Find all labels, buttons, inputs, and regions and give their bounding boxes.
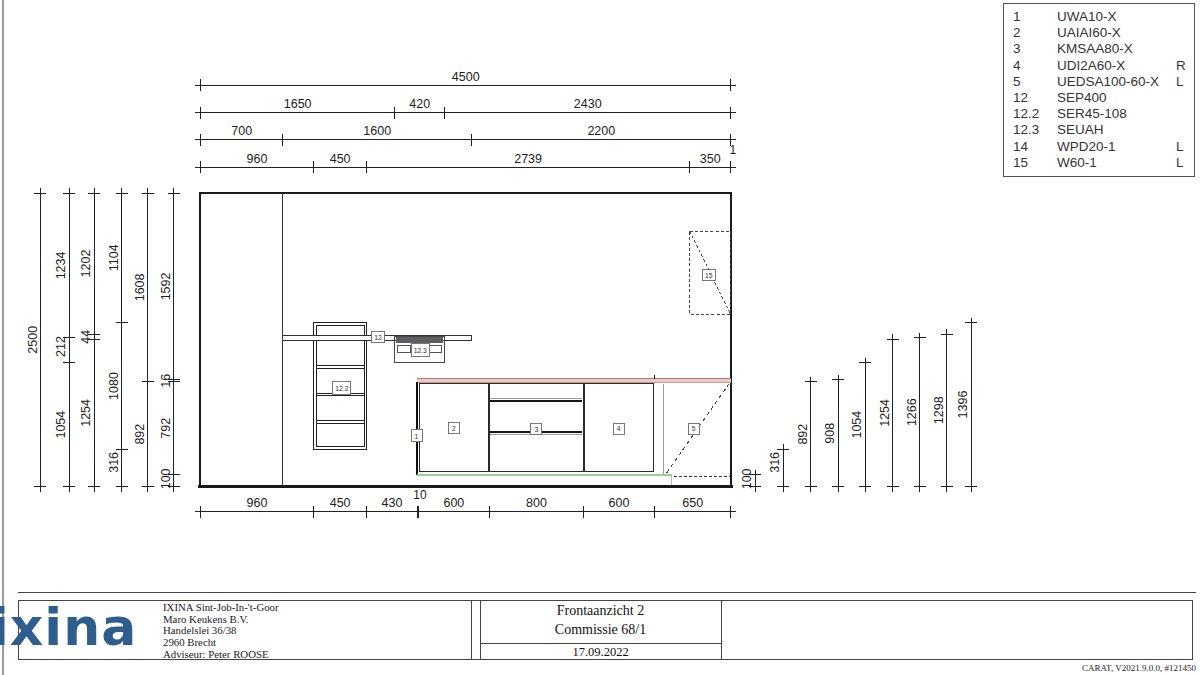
dimension-label: 1266 (905, 398, 919, 426)
plinth (417, 475, 730, 485)
dimension-label: 1254 (80, 399, 94, 427)
dimension-label: 1396 (957, 391, 971, 419)
dimension-label: 1600 (363, 124, 391, 138)
dimension-label: 1608 (133, 273, 147, 301)
parts-list-row: 4UDI2A60-XR (1004, 58, 1194, 74)
parts-list-cell: 3 (1004, 41, 1057, 57)
parts-list-cell: 5 (1004, 74, 1057, 90)
dimension-label: 450 (330, 152, 351, 166)
dim-chain-left-6: 100792161592 (159, 188, 180, 492)
parts-list: 1UWA10-X2UAIAI60-X3KMSAA80-X4UDI2A60-XR5… (1003, 3, 1195, 177)
dimension-label: 1 (415, 433, 419, 440)
parts-list-cell (1176, 122, 1194, 138)
dimension-label: 350 (700, 152, 721, 166)
dim-right-892: 892 (796, 377, 817, 492)
dimension-label: 450 (330, 496, 351, 510)
dimension-label: 212 (55, 336, 69, 357)
parts-list-row: 2UAIAI60-X (1004, 25, 1194, 41)
parts-list-cell (1176, 25, 1194, 41)
parts-list-cell: SEUAH (1057, 122, 1176, 138)
dimension-label: 4 (617, 425, 621, 432)
dimension-label: 100 (741, 468, 755, 489)
parts-list-cell: KMSAA80-X (1057, 41, 1176, 57)
dim-chain-left-2: 10542121234 (55, 188, 76, 492)
commission-number: Commissie 68/1 (480, 622, 721, 638)
dimension-label: 2739 (514, 152, 542, 166)
dimension-label: 2 (452, 425, 456, 432)
dealer-address: IXINA Sint-Job-In-'t-Goor Maro Keukens B… (163, 602, 279, 661)
dimension-label: 1592 (159, 273, 173, 301)
dim-right-1254: 1254 (878, 334, 899, 491)
dim-chain-left-4: 31610801104 (107, 188, 128, 492)
dimension-label: 960 (247, 496, 268, 510)
dimension-label: 4500 (452, 70, 480, 84)
dimension-label: 892 (796, 424, 810, 445)
item-label-1: 1 (411, 430, 422, 442)
parts-list-row: 14WPD20-1L (1004, 139, 1194, 155)
parts-list-row: 5UEDSA100-60-XL (1004, 74, 1194, 90)
dimension-label: 316 (107, 452, 121, 473)
dimension-label: 2200 (587, 124, 615, 138)
dimension-label: 16 (159, 374, 173, 388)
drawing-date: 17.09.2022 (480, 645, 721, 660)
dim-row-top-2: 16504202430 (195, 97, 736, 119)
parts-list-cell: 15 (1004, 155, 1057, 171)
dimension-label: 12.2 (335, 385, 348, 392)
dim-row-top-3: 70016002200 (195, 124, 736, 146)
title-block-divider (471, 600, 472, 660)
parts-list-cell: 14 (1004, 139, 1057, 155)
parts-list-cell: R (1176, 58, 1194, 74)
dim-right-1396: 1396 (957, 318, 978, 492)
dim-right-316: 316 (769, 444, 790, 491)
item-label-12: 12 (372, 332, 385, 343)
parts-list-cell: 12.2 (1004, 106, 1057, 122)
dimension-label: 420 (409, 97, 430, 111)
parts-list-row: 1UWA10-X (1004, 9, 1194, 25)
dimension-label: 960 (247, 152, 268, 166)
parts-list-cell (1176, 9, 1194, 25)
dimension-label: 1234 (55, 251, 69, 279)
dimension-label: 1254 (878, 399, 892, 427)
dim-row-bottom: 96045043010600800600650 (195, 488, 736, 518)
dimension-label: 1080 (107, 372, 121, 400)
dimension-label: 2500 (26, 326, 40, 354)
parts-list-cell: UEDSA100-60-X (1057, 74, 1176, 90)
parts-list-cell (1176, 90, 1194, 106)
dimension-label: 12 (374, 334, 382, 341)
parts-list-cell: UWA10-X (1057, 9, 1176, 25)
parts-list-cell: W60-1 (1057, 155, 1176, 171)
title-block-divider (480, 643, 721, 644)
dealer-line: Adviseur: Peter ROOSE (163, 649, 279, 661)
parts-list-cell: SEP400 (1057, 90, 1176, 106)
parts-list-cell: 4 (1004, 58, 1057, 74)
dimension-label: 700 (231, 124, 252, 138)
dimension-label: 316 (769, 452, 783, 473)
parts-list-row: 15W60-1L (1004, 155, 1194, 171)
item-label-3: 3 (531, 423, 542, 434)
dim-chain-left-1: 2500 (26, 188, 47, 492)
dimension-label: 800 (526, 496, 547, 510)
dimension-label: 892 (133, 424, 147, 445)
dim-chain-left-3: 1254441202 (80, 188, 101, 492)
dimension-label: 10 (413, 488, 427, 502)
item-label-5: 5 (688, 423, 699, 434)
dimension-label: 908 (824, 423, 838, 444)
parts-list-cell: UDI2A60-X (1057, 58, 1176, 74)
parts-list-cell (1176, 41, 1194, 57)
dimension-label: 100 (159, 468, 173, 489)
dimension-label: 792 (159, 418, 173, 439)
parts-list-cell: WPD20-1 (1057, 139, 1176, 155)
dimension-label: 1054 (851, 411, 865, 439)
worktop (417, 375, 731, 382)
parts-list-row: 12SEP400 (1004, 90, 1194, 106)
title-block-divider (721, 600, 722, 660)
carat-print-preview: 4500165042024307001600220096045027393501… (0, 0, 1200, 675)
dim-right-1054: 1054 (851, 358, 872, 492)
item-label-12.3: 12.3 (411, 344, 429, 357)
dimension-label: 1298 (932, 396, 946, 424)
item-label-15: 15 (702, 270, 715, 281)
dim-right-908: 908 (824, 375, 845, 492)
parts-list-cell: UAIAI60-X (1057, 25, 1176, 41)
ixina-logo: ixina (0, 597, 137, 657)
parts-list-cell: SER45-108 (1057, 106, 1176, 122)
item-label-4: 4 (613, 423, 624, 434)
carat-version-credit: CARAT, V2021.9.0.0, #121450 (1082, 663, 1196, 673)
dimension-label: 1 (730, 143, 737, 157)
parts-list-row: 12.2SER45-108 (1004, 106, 1194, 122)
dimension-label: 2430 (574, 97, 602, 111)
dimension-label: 44 (80, 330, 94, 344)
parts-list-cell: L (1176, 155, 1194, 171)
parts-list-row: 12.3SEUAH (1004, 122, 1194, 138)
item-label-12.2: 12.2 (333, 381, 351, 394)
dimension-label: 430 (382, 496, 403, 510)
dimension-label: 12.3 (414, 347, 427, 354)
dim-right-1298: 1298 (932, 329, 953, 491)
parts-list-cell: 12 (1004, 90, 1057, 106)
dimension-label: 1202 (80, 250, 94, 278)
drawing-title: Frontaanzicht 2 (480, 603, 721, 619)
dimension-label: 5 (692, 425, 696, 432)
parts-list-row: 3KMSAA80-X (1004, 41, 1194, 57)
parts-list-cell: L (1176, 74, 1194, 90)
dealer-line: IXINA Sint-Job-In-'t-Goor (163, 602, 279, 614)
dimension-label: 1104 (107, 244, 121, 271)
parts-list-cell: 12.3 (1004, 122, 1057, 138)
dimension-label: 600 (443, 496, 464, 510)
dimension-label: 1650 (284, 97, 312, 111)
dim-row-top-4: 96045027393501 (195, 143, 736, 173)
dimension-label: 650 (682, 496, 703, 510)
parts-list-cell (1176, 106, 1194, 122)
dim-right-1266: 1266 (905, 333, 926, 492)
dimension-label: 1054 (55, 411, 69, 439)
parts-list-cell: 1 (1004, 9, 1057, 25)
parts-list-cell: L (1176, 139, 1194, 155)
item-label-2: 2 (449, 423, 460, 434)
dim-row-top-1: 4500 (195, 70, 736, 92)
dimension-label: 15 (705, 272, 713, 279)
sheet-bottom-border (18, 592, 1196, 593)
dimension-label: 3 (535, 426, 539, 433)
dimension-label: 600 (609, 496, 630, 510)
dim-chain-left-5: 8921608 (133, 188, 154, 492)
parts-list-cell: 2 (1004, 25, 1057, 41)
dim-right-100: 100 (741, 468, 762, 491)
